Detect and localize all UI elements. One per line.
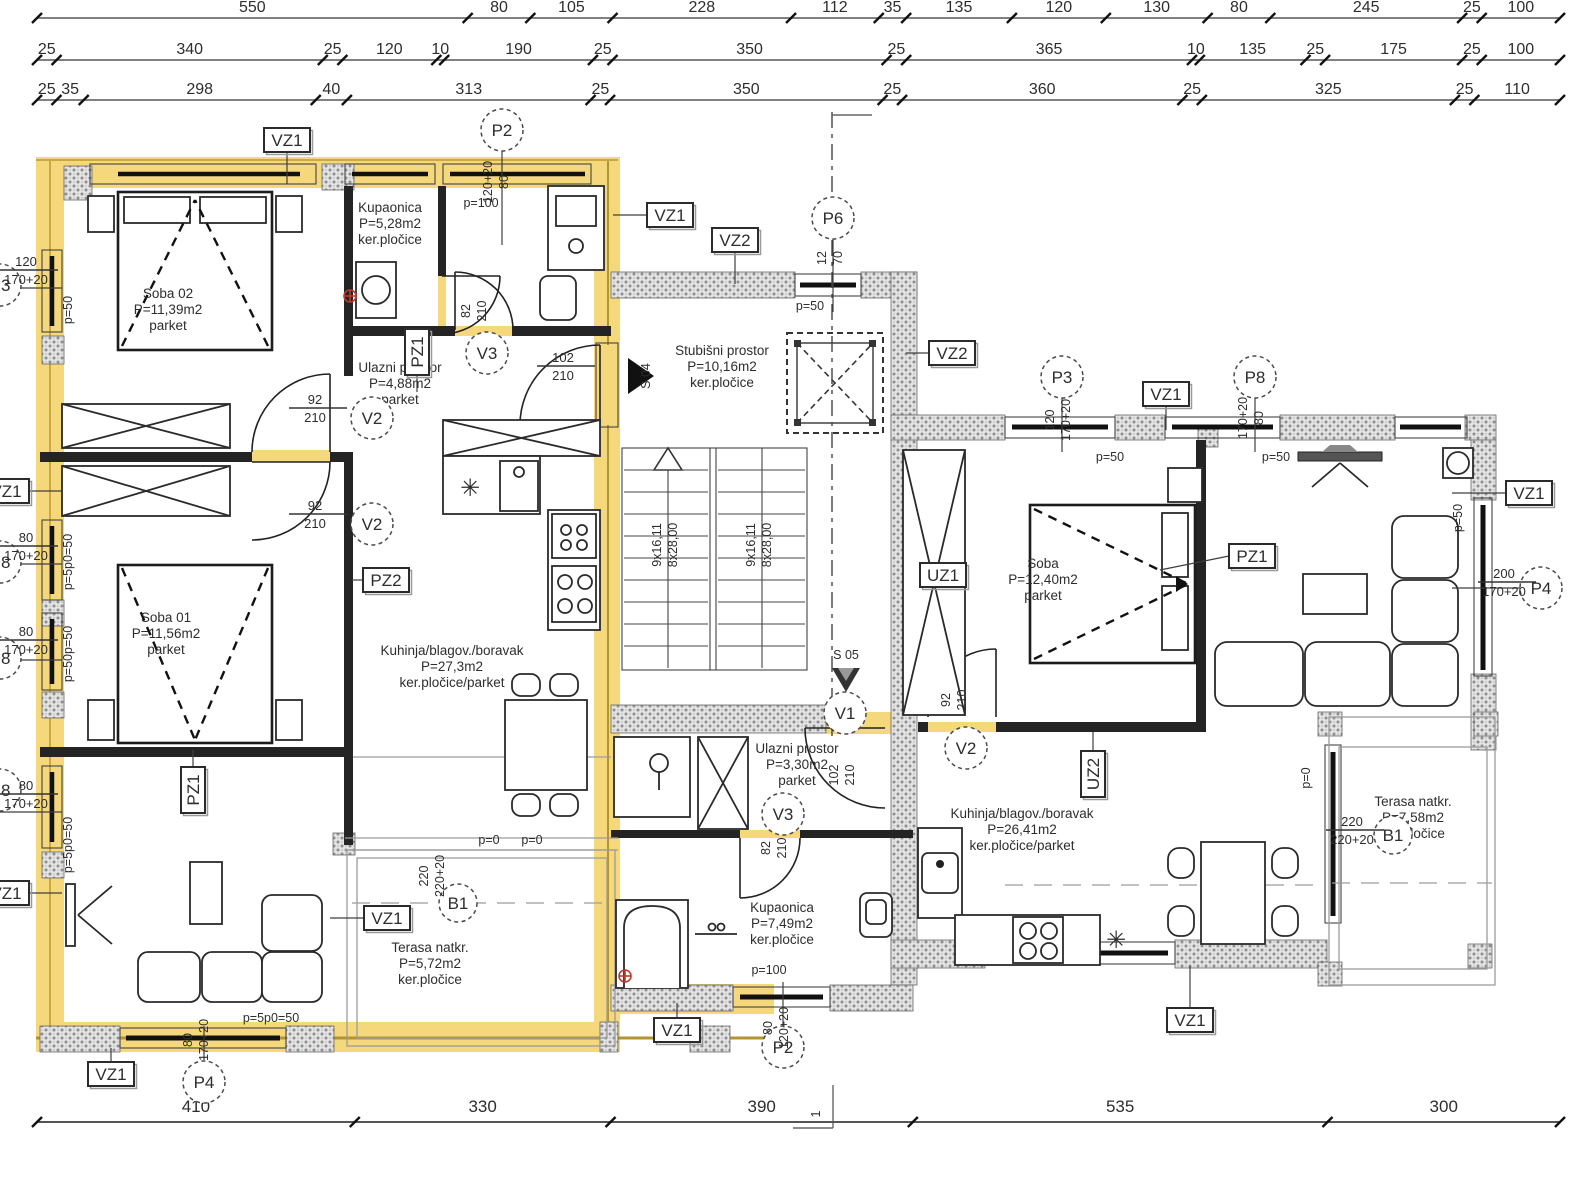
plain-label: p=0 xyxy=(478,833,499,847)
marker-label: VZ2 xyxy=(719,231,750,250)
circle-marker-label: V2 xyxy=(956,739,977,758)
dim-value: 25 xyxy=(1306,41,1324,58)
dim-value: 190 xyxy=(505,41,532,58)
room-label-line: P=27,3m2 xyxy=(421,659,483,674)
dim-value: 120 xyxy=(1046,0,1073,16)
circle-marker-v2: V2 xyxy=(945,727,987,769)
dim-a: 92 xyxy=(939,693,953,707)
dim-b: 210 xyxy=(475,301,489,322)
plain-label: p=100 xyxy=(751,963,786,977)
marker-label: UZ1 xyxy=(927,566,959,585)
dim-value: 35 xyxy=(61,81,79,98)
circle-marker-p8: P8 xyxy=(1234,356,1276,398)
dim-pair-rotated: 170+2080 xyxy=(1236,397,1266,439)
room-label-line: P=12,40m2 xyxy=(1008,572,1077,587)
lamp-living2 xyxy=(1443,448,1473,478)
circle-marker-b1: B1 xyxy=(1374,816,1412,854)
dim-value: 350 xyxy=(736,41,763,58)
coffee-table-living2 xyxy=(1303,574,1367,614)
dim-value: 112 xyxy=(822,0,848,16)
room-label-line: parket xyxy=(778,773,816,788)
marker-vz2: VZ2 xyxy=(712,228,761,255)
dim-value: 40 xyxy=(322,81,340,98)
dim-a: 80 xyxy=(19,624,33,639)
dim-b: 80 xyxy=(497,175,511,189)
room-label-line: P=11,56m2 xyxy=(132,626,200,641)
marker-label: VZ1 xyxy=(661,1021,692,1040)
dim-b: 120+20 xyxy=(777,1007,791,1049)
wc1-toilet xyxy=(540,276,576,320)
room-label-line: ker.pločice xyxy=(398,972,462,987)
rotated-label: 1 xyxy=(809,1110,823,1117)
marker-label: VZ1 xyxy=(1174,1011,1205,1030)
dim-a: 220 xyxy=(1341,814,1363,829)
dim-pair-rotated: 120170+20 xyxy=(1043,399,1073,441)
dim-pair-rotated: 220220+20 xyxy=(417,855,447,897)
dim-value: 350 xyxy=(733,81,760,98)
dim-value: 25 xyxy=(38,81,56,98)
dim-b: 8x28,00 xyxy=(666,523,680,568)
dim-a: 12 xyxy=(815,251,829,265)
dim-value: 228 xyxy=(688,0,715,16)
dim-a: 92 xyxy=(308,392,322,407)
kitchen2-counter xyxy=(955,915,1100,965)
dim-a: 220 xyxy=(417,866,431,887)
dim-pair-stacked: 102210 xyxy=(537,350,595,383)
dim-row-top-1: 55080105228112351351201308024525100 xyxy=(32,0,1565,23)
dim-value: 325 xyxy=(1315,81,1342,98)
marker-label: UZ2 xyxy=(1084,758,1103,790)
toilet-bath2 xyxy=(860,893,892,937)
circle-marker-label: P6 xyxy=(823,209,844,228)
dim-value: 535 xyxy=(1106,1097,1134,1116)
dim-pair-rotated: 1270 xyxy=(815,251,845,265)
room-label-line: ker.pločice xyxy=(690,375,754,390)
room-label-line: ker.pločice/parket xyxy=(969,838,1074,853)
marker-uz1: UZ1 xyxy=(920,563,969,590)
window-stair-p6 xyxy=(795,274,861,296)
dim-value: 25 xyxy=(883,81,901,98)
room-label-line: Soba 01 xyxy=(141,610,191,625)
room-label-stubisni: Stubišni prostorP=10,16m2ker.pločice xyxy=(675,343,769,390)
dim-a: 120 xyxy=(15,254,37,269)
washing-machine-bath1 xyxy=(356,262,396,318)
circle-marker-p2: P2 xyxy=(481,109,523,151)
dining-table-apt2 xyxy=(1168,842,1298,944)
dim-value: 25 xyxy=(1463,0,1481,16)
dim-b: 220+20 xyxy=(433,855,447,897)
dim-row-top-2: 2534025120101902535025365101352517525100 xyxy=(32,41,1565,65)
room-label-line: P=7,49m2 xyxy=(751,916,813,931)
dim-value: 245 xyxy=(1353,0,1380,16)
marker-vz1: VZ1 xyxy=(0,881,32,908)
dim-b: 170+20 xyxy=(1482,584,1526,599)
marker-vz1: VZ1 xyxy=(364,906,413,933)
dim-b: 210 xyxy=(552,368,574,383)
dim-a: 102 xyxy=(827,765,841,786)
marker-vz1: VZ1 xyxy=(1506,481,1555,508)
mirror-bath2 xyxy=(695,924,737,935)
dim-value: 300 xyxy=(1430,1097,1458,1116)
room-label-line: P=5,28m2 xyxy=(359,216,421,231)
circle-marker-p3: P3 xyxy=(1041,356,1083,398)
marker-label: PZ1 xyxy=(184,774,203,805)
dim-pair-rotated: 82210 xyxy=(759,838,789,859)
dim-b: 170+20 xyxy=(4,796,48,811)
dim-a: 9x16,11 xyxy=(744,523,758,567)
room-label-line: P=26,41m2 xyxy=(987,822,1056,837)
room-label-line: parket xyxy=(1024,588,1062,603)
dim-value: 105 xyxy=(558,0,585,16)
circle-marker-label: B1 xyxy=(448,894,469,913)
dim-value: 120 xyxy=(376,41,403,58)
dim-pair-stacked: 92210 xyxy=(289,392,347,425)
room-label-kuhinja2: Kuhinja/blagov./boravakP=26,41m2ker.ploč… xyxy=(950,806,1093,853)
dim-b: 170+20 xyxy=(4,548,48,563)
room-label-kuhinja1: Kuhinja/blagov./boravakP=27,3m2ker.ploči… xyxy=(380,643,523,690)
tv-living1 xyxy=(66,884,112,946)
circle-marker-label: P8 xyxy=(1245,368,1266,387)
dim-a: 82 xyxy=(759,841,773,855)
floor-plan-page: 5508010522811235135120130802452510025340… xyxy=(0,0,1590,1192)
marker-label: VZ1 xyxy=(271,131,302,150)
dim-value: 10 xyxy=(1187,41,1205,58)
marker-label: VZ1 xyxy=(0,884,22,903)
dim-pair-rotated: 9x16,118x28,00 xyxy=(650,523,680,568)
room-label-terasa1: Terasa natkr.P=5,72m2ker.pločice xyxy=(391,940,468,987)
circle-marker-label: V3 xyxy=(477,344,498,363)
rotated-label: p=5p0=50 xyxy=(61,534,75,590)
room-label-kupaonica2: KupaonicaP=7,49m2ker.pločice xyxy=(750,900,814,947)
room-label-line: Terasa natkr. xyxy=(1374,794,1451,809)
room-label-line: ker.pločice xyxy=(750,932,814,947)
dim-value: 135 xyxy=(946,0,973,16)
plain-label: p=50 xyxy=(1262,450,1290,464)
rotated-label: p=5p0=50 xyxy=(61,817,75,873)
kitchen1-cabinet xyxy=(443,420,600,456)
dim-value: 313 xyxy=(455,81,482,98)
circle-marker-p6: P6 xyxy=(812,197,854,239)
wardrobe-apt1-a xyxy=(62,404,230,448)
plain-label: p=5p0=50 xyxy=(243,1011,299,1025)
dim-b: 220+20 xyxy=(1330,832,1374,847)
plumbing-symbol-2 xyxy=(619,970,631,982)
cabinet-living1 xyxy=(190,862,222,924)
furniture xyxy=(62,186,1473,1002)
marker-vz1: VZ1 xyxy=(264,128,313,155)
dim-b: 170+20 xyxy=(4,272,48,287)
dim-a: 200 xyxy=(1493,566,1515,581)
dim-pair-rotated: 9x16,118x28,00 xyxy=(744,523,774,568)
plain-label: ✳ xyxy=(460,475,480,502)
rotated-label: p=50 xyxy=(1451,504,1465,532)
rotated-label: p=0 xyxy=(1299,767,1313,788)
circle-marker-p4: P4 xyxy=(1520,567,1562,609)
dim-value: 25 xyxy=(1183,81,1201,98)
room-label-line: Kupaonica xyxy=(750,900,814,915)
plain-label: p=100 xyxy=(463,196,498,210)
dim-value: 340 xyxy=(176,41,203,58)
room-label-line: parket xyxy=(149,318,187,333)
room-label-line: Ulazni prostor xyxy=(755,741,839,756)
circle-marker-label: B1 xyxy=(1383,826,1404,845)
marker-vz1: VZ1 xyxy=(1167,1008,1216,1035)
dim-value: 298 xyxy=(186,81,213,98)
bed-soba01 xyxy=(88,565,302,743)
wardrobe-apt1-b xyxy=(62,466,230,516)
circle-marker-v3: V3 xyxy=(762,793,804,835)
dim-a: 82 xyxy=(459,304,473,318)
marker-label: VZ1 xyxy=(1513,484,1544,503)
marker-vz2: VZ2 xyxy=(929,341,978,368)
marker-pz2: PZ2 xyxy=(363,568,412,595)
plain-label: S 05 xyxy=(833,648,859,662)
dim-b: 170+20 xyxy=(197,1019,211,1061)
circle-marker-label: V3 xyxy=(773,805,794,824)
marker-label: VZ1 xyxy=(95,1065,126,1084)
plain-label: p=0 xyxy=(521,833,542,847)
room-label-line: Soba 02 xyxy=(143,286,193,301)
circle-marker-v1: V1 xyxy=(824,692,866,734)
dim-value: 110 xyxy=(1504,81,1530,98)
room-label-line: Kupaonica xyxy=(358,200,422,215)
dim-value: 25 xyxy=(324,41,342,58)
rotated-label: p=50p=50 xyxy=(61,626,75,682)
plumbing-symbol-1 xyxy=(344,290,356,302)
elevator-shaft xyxy=(787,333,883,433)
circle-marker-v2: V2 xyxy=(351,503,393,545)
dim-value: 360 xyxy=(1029,81,1056,98)
room-label-kupaonica1: KupaonicaP=5,28m2ker.pločice xyxy=(358,200,422,247)
circle-marker-label: P3 xyxy=(1052,368,1073,387)
dim-value: 135 xyxy=(1239,41,1266,58)
room-label-line: parket xyxy=(147,642,185,657)
dim-value: 25 xyxy=(38,41,56,58)
dim-b: 70 xyxy=(831,251,845,265)
circle-marker-p4: P4 xyxy=(183,1061,225,1103)
marker-pz1: PZ1 xyxy=(1229,544,1278,571)
dim-pair-rotated: 102210 xyxy=(827,765,857,786)
marker-vz1: VZ1 xyxy=(647,203,696,230)
dim-value: 390 xyxy=(747,1097,775,1116)
dim-value: 365 xyxy=(1036,41,1063,58)
marker-uz2: UZ2 xyxy=(1081,751,1108,800)
dim-value: 130 xyxy=(1143,0,1170,16)
dim-value: 35 xyxy=(884,0,902,16)
dim-value: 175 xyxy=(1380,41,1407,58)
dim-a: 102 xyxy=(552,350,574,365)
dim-value: 330 xyxy=(468,1097,496,1116)
dim-value: 100 xyxy=(1507,0,1534,16)
dim-a: 120 xyxy=(1043,410,1057,431)
dim-row-top-3: 25352984031325350253602532525110 xyxy=(32,81,1565,105)
plain-label: ✳ xyxy=(1106,927,1126,954)
sofa-living1 xyxy=(138,895,322,1002)
dim-value: 25 xyxy=(594,41,612,58)
room-label-line: Terasa natkr. xyxy=(391,940,468,955)
dim-b: 210 xyxy=(304,410,326,425)
dim-a: 92 xyxy=(308,498,322,513)
dim-a: 9x16,11 xyxy=(650,523,664,567)
dim-b: 80 xyxy=(1252,411,1266,425)
tv-living2 xyxy=(1298,445,1382,487)
dim-value: 550 xyxy=(239,0,266,16)
marker-vz1: VZ1 xyxy=(0,479,32,506)
room-label-line: Kuhinja/blagov./boravak xyxy=(380,643,523,658)
circle-marker-label: V2 xyxy=(362,409,383,428)
plain-label: p=50 xyxy=(796,299,824,313)
sink-hall2 xyxy=(614,737,690,817)
dim-value: 80 xyxy=(490,0,508,16)
room-label-line: ker.pločice/parket xyxy=(399,675,504,690)
dining-table-apt1 xyxy=(505,674,587,816)
marker-vz1: VZ1 xyxy=(654,1018,703,1045)
room-label-line: ker.pločice xyxy=(358,232,422,247)
dim-a: 80 xyxy=(181,1033,195,1047)
rotated-label: p=50 xyxy=(61,296,75,324)
marker-label: VZ1 xyxy=(371,909,402,928)
marker-label: PZ2 xyxy=(370,571,401,590)
dim-value: 100 xyxy=(1507,41,1534,58)
window-balcony2 xyxy=(1395,417,1467,438)
marker-label: PZ1 xyxy=(408,336,427,367)
room-label-line: Stubišni prostor xyxy=(675,343,769,358)
marker-vz1: VZ1 xyxy=(1143,382,1192,409)
room-label-line: P=3,30m2 xyxy=(766,757,828,772)
dim-value: 25 xyxy=(1456,81,1474,98)
room-label-line: P=10,16m2 xyxy=(687,359,756,374)
dim-b: 210 xyxy=(843,765,857,786)
room-label-line: Soba xyxy=(1027,556,1059,571)
dim-b: 210 xyxy=(955,690,969,711)
dim-value: 80 xyxy=(1230,0,1248,16)
dim-value: 25 xyxy=(887,41,905,58)
circle-marker-label: V2 xyxy=(362,515,383,534)
floor-plan-canvas: 5508010522811235135120130802452510025340… xyxy=(0,0,1590,1192)
marker-pz1: PZ1 xyxy=(181,767,208,816)
s05-triangle xyxy=(832,668,860,692)
dim-a: 80 xyxy=(19,778,33,793)
room-label-line: P=5,72m2 xyxy=(399,956,461,971)
marker-vz1: VZ1 xyxy=(88,1062,137,1089)
dim-value: 25 xyxy=(1463,41,1481,58)
circle-marker-label: P2 xyxy=(492,121,513,140)
marker-pz1: PZ1 xyxy=(405,329,432,378)
dim-b: 210 xyxy=(304,516,326,531)
room-label-line: Kuhinja/blagov./boravak xyxy=(950,806,1093,821)
dim-b: 170+20 xyxy=(4,642,48,657)
circle-marker-label: P4 xyxy=(194,1073,215,1092)
marker-label: VZ2 xyxy=(936,344,967,363)
dim-b: 170+20 xyxy=(1059,399,1073,441)
bed-soba02 xyxy=(88,192,302,350)
plain-label: p=50 xyxy=(1096,450,1124,464)
wc-room1-counter xyxy=(548,186,604,270)
dim-a: 80 xyxy=(761,1021,775,1035)
circle-marker-label: V1 xyxy=(835,704,856,723)
dim-a: 170+20 xyxy=(1236,397,1250,439)
dim-b: 8x28,00 xyxy=(760,523,774,568)
dim-row-bottom: 410330390535300 xyxy=(32,1097,1565,1127)
dim-value: 25 xyxy=(591,81,609,98)
dim-pair-rotated: 82210 xyxy=(459,301,489,322)
circle-marker-v3: V3 xyxy=(466,332,508,374)
marker-label: PZ1 xyxy=(1236,547,1267,566)
rotated-label: S 04 xyxy=(639,363,653,389)
dim-b: 210 xyxy=(775,838,789,859)
marker-label: VZ1 xyxy=(0,482,22,501)
dim-value: 10 xyxy=(431,41,449,58)
closet-apt2 xyxy=(698,737,748,829)
circle-marker-v2: V2 xyxy=(351,397,393,439)
room-label-line: P=11,39m2 xyxy=(134,302,202,317)
marker-label: VZ1 xyxy=(1150,385,1181,404)
marker-label: VZ1 xyxy=(654,206,685,225)
kitchen2-sink-counter xyxy=(918,828,962,918)
bathtub-apt2 xyxy=(616,900,688,988)
dim-a: 80 xyxy=(19,530,33,545)
